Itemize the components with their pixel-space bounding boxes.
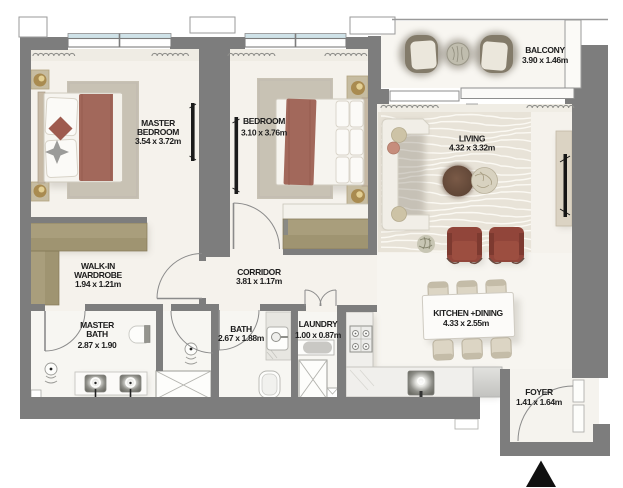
svg-text:3.90 x 1.46m: 3.90 x 1.46m bbox=[522, 55, 569, 65]
svg-text:2.87 x 1.90: 2.87 x 1.90 bbox=[78, 340, 117, 350]
svg-text:1.41 x 1.64m: 1.41 x 1.64m bbox=[516, 397, 563, 407]
svg-text:3.81 x 1.17m: 3.81 x 1.17m bbox=[236, 276, 283, 286]
svg-text:BALCONY: BALCONY bbox=[525, 45, 565, 55]
svg-text:3.54 x 3.72m: 3.54 x 3.72m bbox=[135, 136, 182, 146]
svg-text:4.32 x 3.32m: 4.32 x 3.32m bbox=[449, 143, 496, 153]
svg-text:4.33 x 2.55m: 4.33 x 2.55m bbox=[443, 318, 490, 328]
svg-text:1.00 x 0.87m: 1.00 x 0.87m bbox=[295, 330, 342, 340]
svg-text:3.10 x 3.76m: 3.10 x 3.76m bbox=[241, 128, 288, 138]
svg-text:LAUNDRY: LAUNDRY bbox=[299, 319, 338, 329]
svg-text:BEDROOM: BEDROOM bbox=[243, 116, 285, 126]
svg-text:KITCHEN +DINING: KITCHEN +DINING bbox=[433, 308, 503, 318]
svg-text:1.94 x 1.21m: 1.94 x 1.21m bbox=[75, 279, 122, 289]
svg-text:FOYER: FOYER bbox=[525, 387, 553, 397]
svg-text:2.67 x 1.88m: 2.67 x 1.88m bbox=[218, 333, 265, 343]
svg-text:BATH: BATH bbox=[86, 329, 108, 339]
